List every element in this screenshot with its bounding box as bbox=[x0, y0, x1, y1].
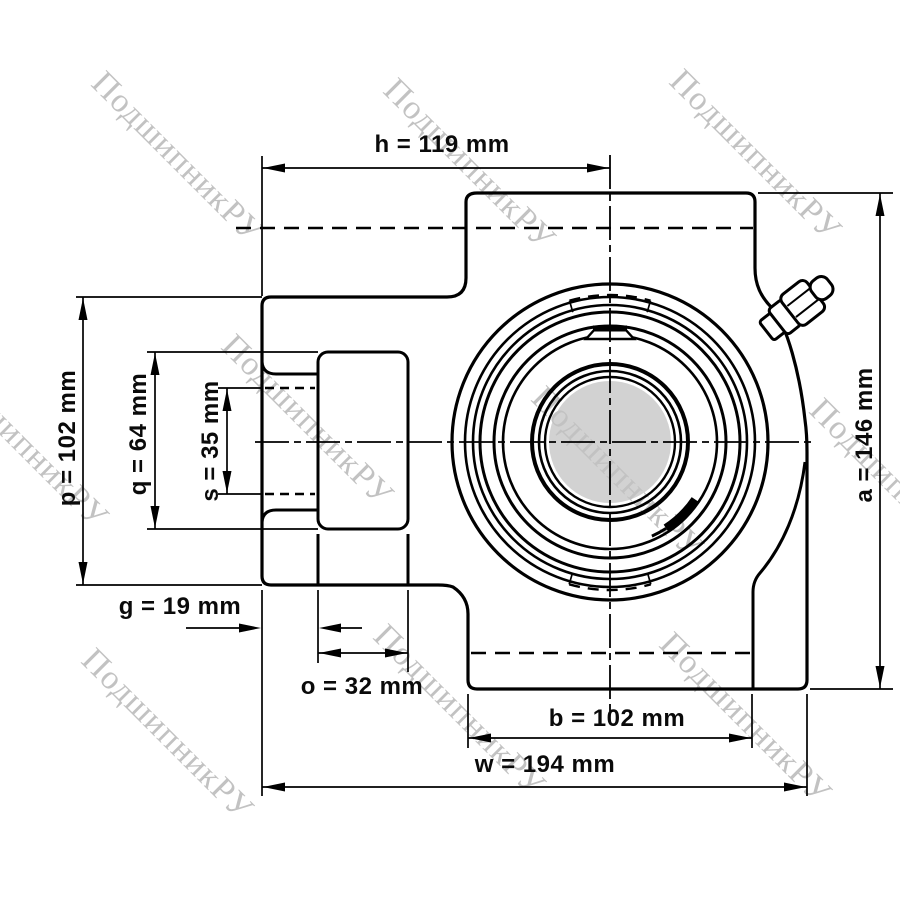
arrowhead bbox=[587, 164, 609, 173]
arrowhead bbox=[151, 506, 160, 528]
dimension-a: a = 146 mm bbox=[851, 193, 885, 689]
dimension-label-h: h = 119 mm bbox=[374, 131, 509, 158]
arrowhead bbox=[319, 649, 341, 658]
watermark-text: ПодшипникРУ bbox=[214, 327, 400, 513]
guide-lip-bottom bbox=[262, 510, 318, 522]
dimension-label-s: s = 35 mm bbox=[197, 380, 224, 501]
dimension-g: g = 19 mm bbox=[119, 593, 362, 633]
watermark-text: ПодшипникРУ bbox=[74, 641, 260, 827]
dimension-label-p: p = 102 mm bbox=[54, 370, 81, 506]
dimension-label-o: o = 32 mm bbox=[301, 673, 424, 700]
arrowhead bbox=[263, 164, 285, 173]
arrowhead bbox=[263, 783, 285, 792]
dimension-label-b: b = 102 mm bbox=[549, 705, 685, 732]
dimension-p: p = 102 mm bbox=[54, 297, 88, 585]
dimension-label-a: a = 146 mm bbox=[851, 367, 878, 502]
dimension-q: q = 64 mm bbox=[125, 352, 160, 529]
dimension-h: h = 119 mm bbox=[262, 131, 610, 173]
arrowhead bbox=[876, 194, 885, 216]
arrowhead bbox=[319, 624, 341, 633]
grease-fitting bbox=[755, 267, 841, 346]
arrowhead bbox=[79, 562, 88, 584]
dimension-label-w: w = 194 mm bbox=[474, 751, 615, 778]
arrowhead bbox=[239, 624, 261, 633]
dimension-s: s = 35 mm bbox=[197, 380, 232, 501]
bearing-unit-drawing: ПодшипникРУ ПодшипникРУ ПодшипникРУ Подш… bbox=[0, 0, 900, 900]
arrowhead bbox=[876, 666, 885, 688]
technical-drawing-svg: ПодшипникРУ ПодшипникРУ ПодшипникРУ Подш… bbox=[0, 0, 900, 900]
dimension-label-q: q = 64 mm bbox=[125, 373, 152, 496]
arrowhead bbox=[79, 298, 88, 320]
watermark-text: ПодшипникРУ bbox=[84, 64, 270, 250]
arrowhead bbox=[151, 353, 160, 375]
dimension-label-g: g = 19 mm bbox=[119, 593, 242, 620]
boss-to-foot-contour bbox=[753, 462, 805, 689]
watermark-text: ПодшипникРУ bbox=[376, 71, 562, 257]
